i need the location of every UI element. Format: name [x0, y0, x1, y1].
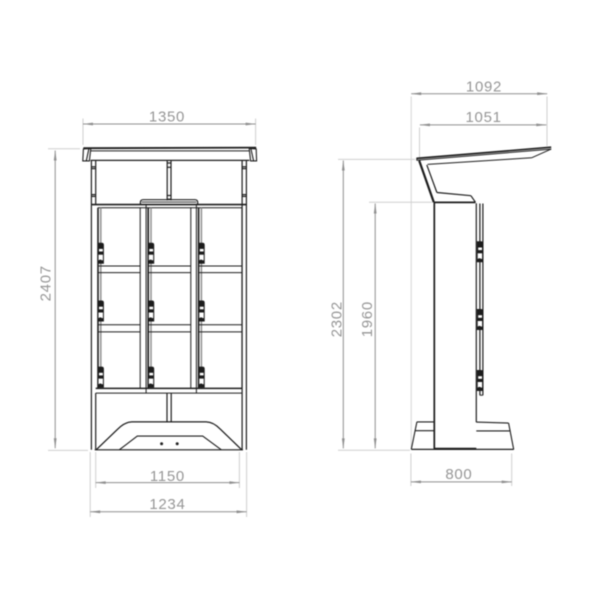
svg-text:2407: 2407 — [38, 265, 55, 301]
svg-text:1960: 1960 — [359, 301, 376, 337]
svg-text:1092: 1092 — [466, 79, 502, 96]
svg-text:2302: 2302 — [329, 301, 346, 337]
svg-text:800: 800 — [445, 466, 472, 483]
svg-text:1350: 1350 — [149, 109, 185, 126]
svg-text:1234: 1234 — [149, 496, 185, 513]
svg-text:1150: 1150 — [150, 468, 185, 485]
svg-text:1051: 1051 — [466, 109, 502, 126]
